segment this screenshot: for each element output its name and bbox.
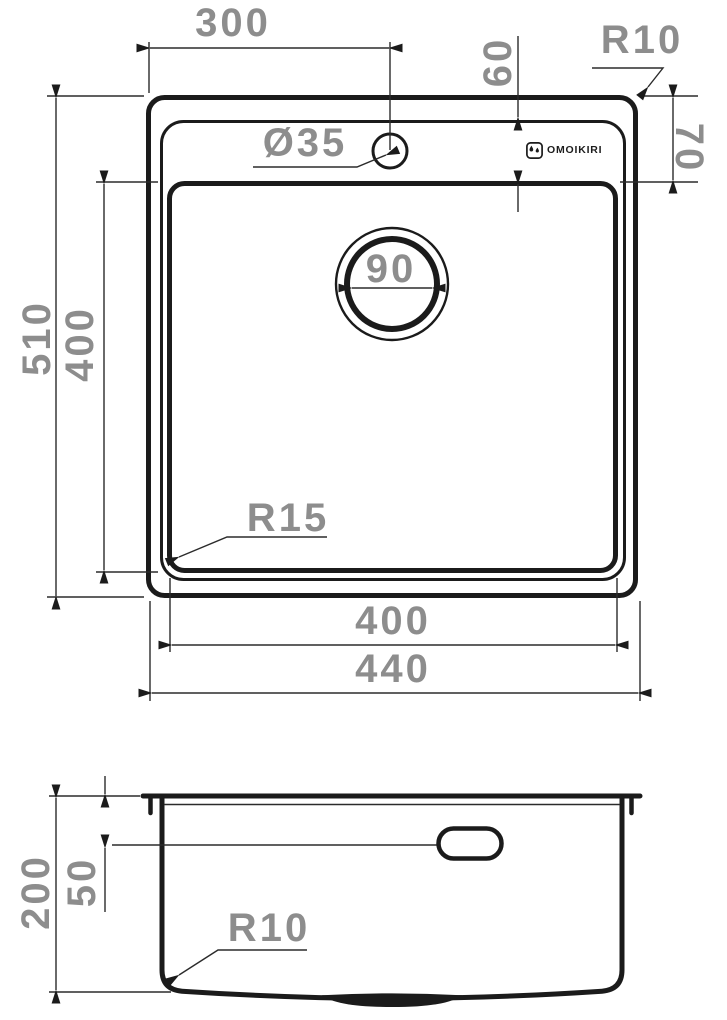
brand-logo-text: OMOIKIRI: [547, 145, 602, 156]
dim-label-faucet-offset: 300: [195, 3, 271, 43]
dim-label-drain-diameter: 90: [366, 249, 417, 289]
dim-label-rim-offset: 70: [669, 123, 709, 174]
flange-tabs: [151, 798, 632, 813]
dim-label-outer-corner-radius: R10: [601, 20, 683, 60]
section-view-outline: [112, 796, 640, 1007]
dim-label-overall-height: 510: [17, 300, 57, 376]
top-view-outline: [149, 98, 636, 596]
sink-outer-edge: [149, 98, 636, 596]
sink-rim-edge: [162, 122, 625, 580]
sink-dimension-drawing: 300 60 R10 70 Ø35 90 510 400 R15 400 440…: [0, 0, 727, 1020]
dim-label-bowl-width: 400: [355, 601, 431, 641]
drawing-canvas: [0, 0, 727, 1020]
omoikiri-drops-icon: [526, 142, 543, 159]
dim-label-faucet-hole: Ø35: [263, 123, 348, 163]
dim-label-bottom-corner-radius: R10: [228, 908, 310, 948]
leader-r15: [179, 537, 327, 557]
brand-logo: OMOIKIRI: [526, 141, 602, 159]
bowl-section-shell: [162, 798, 622, 999]
leader-r10-bottom: [179, 950, 307, 975]
drain-boss: [322, 993, 462, 1007]
leader-r10-top: [592, 68, 663, 87]
dim-label-overall-depth: 200: [16, 854, 56, 930]
dim-label-bowl-corner-radius: R15: [247, 498, 329, 538]
dim-label-bowl-height: 400: [60, 306, 100, 382]
overflow-hole: [439, 829, 502, 859]
dim-label-deck-height: 60: [478, 37, 518, 88]
dim-label-overflow-offset: 50: [62, 857, 102, 908]
dim-label-overall-width: 440: [355, 649, 431, 689]
